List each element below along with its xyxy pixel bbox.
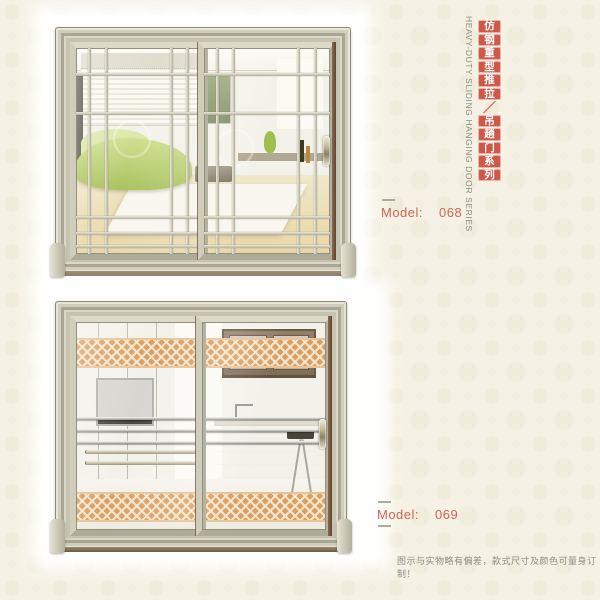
door-post-right xyxy=(341,243,356,277)
door-post-left xyxy=(50,243,65,277)
series-title-char: 钢 xyxy=(478,34,501,47)
model-label: Model: xyxy=(381,205,423,220)
grille-bar xyxy=(186,48,189,254)
door-glass-area xyxy=(70,42,336,260)
series-title-char: 推 xyxy=(478,74,501,87)
grille-bar xyxy=(76,112,202,115)
series-title-char: 门 xyxy=(478,142,501,155)
series-title-char: 型 xyxy=(478,61,501,74)
door-panel-left xyxy=(70,316,206,536)
grille-bar xyxy=(314,48,317,254)
door-threshold xyxy=(59,547,343,552)
series-title-char: 系 xyxy=(478,155,501,168)
series-title-char: 吊 xyxy=(478,115,501,128)
grille-bar xyxy=(204,112,330,115)
series-title-char: 趟 xyxy=(478,128,501,141)
grille-bar xyxy=(76,232,202,235)
grille-bar xyxy=(76,73,202,76)
product-photo-069 xyxy=(42,291,379,559)
door-panel-left xyxy=(70,42,208,260)
grille-bar xyxy=(88,48,91,254)
grille-bar xyxy=(204,232,330,235)
sliding-door-068 xyxy=(55,27,351,273)
grille-bar xyxy=(232,48,235,254)
series-title-char: 仿 xyxy=(478,20,501,33)
door-post-right xyxy=(337,519,352,553)
panel-frame xyxy=(196,316,332,536)
series-title-char: 列 xyxy=(478,169,501,182)
grille-bar xyxy=(76,245,202,248)
grille-bar xyxy=(105,48,108,254)
model-label: Model: xyxy=(377,507,419,522)
model-number: 069 xyxy=(435,507,458,522)
model-number: 068 xyxy=(439,205,462,220)
door-glass-area xyxy=(70,316,332,536)
grille-bar xyxy=(216,48,219,254)
tick-mark xyxy=(382,199,395,201)
model-caption-069: Model:069 xyxy=(377,501,458,527)
door-handle xyxy=(323,136,330,166)
door-post-left xyxy=(50,519,65,553)
tick-mark xyxy=(378,525,391,527)
series-title-char: 拉 xyxy=(478,88,501,101)
series-title-english: HEAVY-DUTY SLIDING HANGING DOOR SERIES xyxy=(458,16,474,192)
panel-frame xyxy=(70,316,206,536)
grille-bar xyxy=(170,48,173,254)
door-handle xyxy=(319,419,326,449)
door-threshold xyxy=(59,271,347,276)
tick-mark xyxy=(378,501,391,503)
series-title-char: 重 xyxy=(478,47,501,60)
series-title-slash: ／ xyxy=(478,101,501,114)
door-track-edge xyxy=(328,316,332,536)
door-track-edge xyxy=(332,42,336,260)
footer-disclaimer: 图示与实物略有偏差，款式尺寸及颜色可量身订制！ xyxy=(397,554,600,580)
model-caption-068: Model:068 xyxy=(381,199,462,220)
grille-bar xyxy=(76,216,202,219)
grille-bar xyxy=(204,245,330,248)
sliding-door-069 xyxy=(55,301,347,549)
grille-bar xyxy=(297,48,300,254)
door-panel-right xyxy=(196,316,332,536)
product-photo-068 xyxy=(42,15,362,283)
grille-bar xyxy=(204,216,330,219)
series-title-chinese: 仿 钢 重 型 推 拉 ／ 吊 趟 门 系 列 xyxy=(478,20,501,181)
door-panel-right xyxy=(198,42,336,260)
grille-bar xyxy=(204,73,330,76)
